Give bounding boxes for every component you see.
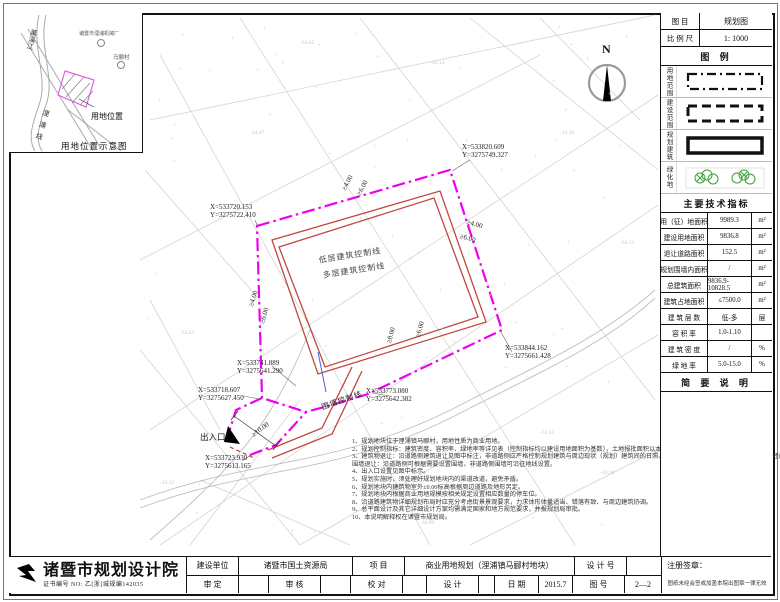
coordinate-label: X=533718.607Y=3275627.450 [198, 386, 244, 402]
indicator-unit: m² [752, 261, 772, 276]
legend-item-label: 绿化地 [661, 162, 677, 193]
survey-mark: + [257, 237, 260, 243]
location-inset: 诸暨市浬浦机械厂 马郦村 萬溪江 浬浦线 用地位置 用地位置示意图 [9, 13, 143, 153]
indicator-unit: m² [752, 213, 772, 228]
coordinate-leaders [242, 160, 512, 461]
survey-mark: + [558, 25, 561, 31]
survey-mark: + [564, 108, 567, 114]
poi-village-label: 马郦村 [113, 53, 130, 61]
survey-mark: + [618, 144, 621, 150]
survey-mark: + [406, 139, 409, 145]
survey-mark: + [419, 532, 422, 538]
survey-mark: + [409, 257, 412, 263]
building-control-lines [230, 191, 486, 458]
indicator-value: 5.0-15.0 [708, 357, 752, 372]
seal-label: 注册签章： [667, 560, 707, 571]
indicator-label: 绿 地 率 [661, 357, 708, 372]
survey-mark: + [291, 529, 294, 535]
survey-mark: + [154, 272, 157, 278]
client-value: 诸暨市国土资源局 [239, 557, 353, 575]
indicator-unit: 层 [752, 309, 772, 324]
survey-mark: + [173, 159, 176, 165]
checked-label: 校 对 [351, 576, 403, 594]
indicator-row: 容 积 率1.0-1.10 [661, 325, 772, 341]
survey-mark: + [373, 165, 376, 171]
poi-circle [98, 40, 105, 47]
survey-mark: + [158, 99, 161, 105]
indicator-value: 1.0-1.10 [708, 325, 752, 340]
indicator-label: 退让道路面积 [661, 245, 708, 260]
coordinate-label: X=533720.153Y=3275722.410 [210, 203, 256, 219]
survey-mark: + [146, 317, 149, 323]
survey-mark: + [181, 33, 184, 39]
sidebar: 图 目 规划图 比 例 尺 1: 1000 图 例 用地范围 建设范围 规划建筑 [660, 13, 772, 556]
north-arrow-icon [589, 65, 625, 101]
sheet-no-label: 图 号 [573, 576, 625, 594]
survey-mark: + [391, 235, 394, 241]
survey-mark: + [421, 415, 424, 421]
survey-mark: + [567, 240, 570, 246]
site-location-label: 用地位置 [91, 111, 123, 122]
trees-symbol [677, 166, 772, 190]
elevation-mark: -34.35 [540, 430, 554, 436]
brief-notes-title: 简 要 说 明 [661, 373, 772, 392]
survey-mark: + [324, 344, 327, 350]
survey-mark: + [453, 340, 456, 346]
survey-mark: + [376, 55, 379, 61]
survey-mark: + [318, 43, 321, 49]
note-line: 5、规划实施时，须处理好规划地块内的渠道改道，避免矛盾。 [352, 476, 654, 484]
checked-value [403, 576, 427, 594]
indicator-unit: m² [752, 277, 772, 292]
survey-mark: + [256, 68, 259, 74]
survey-mark: + [534, 155, 537, 161]
survey-mark: + [489, 293, 492, 299]
survey-mark: + [275, 53, 278, 59]
survey-mark: + [208, 69, 211, 75]
survey-mark: + [309, 336, 312, 342]
inset-title: 用地位置示意图 [61, 140, 128, 152]
survey-mark: + [198, 483, 201, 489]
indicator-label: 建筑占地面积 [661, 293, 708, 308]
survey-mark: + [400, 416, 403, 422]
elevation-mark: -34.05 [300, 40, 314, 46]
legend-item-label: 建设范围 [661, 98, 677, 129]
survey-mark: + [504, 366, 507, 372]
legend-item-greenery: 绿化地 [661, 162, 772, 194]
survey-mark: + [425, 356, 428, 362]
survey-mark: + [600, 523, 603, 529]
survey-mark: + [373, 144, 376, 150]
solid-rect-symbol [677, 135, 772, 157]
indicator-value: 9989.3 [708, 213, 752, 228]
indicator-value: / [708, 341, 752, 356]
survey-mark: + [586, 57, 589, 63]
poi-circle [118, 62, 125, 69]
legend-item-land-use: 用地范围 [661, 66, 772, 98]
elevation-mark: -34.14 [430, 60, 444, 66]
survey-mark: + [328, 152, 331, 158]
survey-mark: + [602, 196, 605, 202]
indicator-value: 9836.8 [708, 229, 752, 244]
elevation-mark: -34.28 [560, 130, 574, 136]
survey-mark: + [555, 138, 558, 144]
design-no-label: 设 计 号 [575, 557, 627, 575]
legend-item-label: 用地范围 [661, 66, 677, 97]
survey-mark: + [515, 321, 518, 327]
client-label: 建设单位 [187, 557, 239, 575]
dashed-rect-symbol [677, 103, 772, 125]
survey-mark: + [311, 298, 314, 304]
indicator-unit: m² [752, 245, 772, 260]
survey-mark: + [552, 79, 555, 85]
reviewed-label: 审 核 [269, 576, 321, 594]
survey-mark: + [315, 86, 318, 92]
survey-mark: + [313, 530, 316, 536]
note-line: 7、规划地块内根据商业用地规模按相关规定设置相应数量的停车位。 [352, 491, 654, 499]
survey-mark: + [608, 92, 611, 98]
design-no-value [627, 557, 661, 575]
survey-mark: + [263, 26, 266, 32]
survey-mark: + [417, 251, 420, 257]
institute-logo-icon [9, 563, 43, 587]
project-label: 项 目 [353, 557, 405, 575]
survey-mark: + [315, 355, 318, 361]
elevation-mark: -34.31 [160, 480, 174, 486]
designed-label: 设 计 [427, 576, 479, 594]
reviewed-value [321, 576, 351, 594]
survey-mark: + [380, 422, 383, 428]
scale-value: 1: 1000 [700, 30, 772, 46]
indicator-unit: % [752, 357, 772, 372]
entrance-arrow-icon [224, 426, 240, 444]
sheet-type-row: 图 目 规划图 [661, 13, 772, 30]
survey-mark: + [572, 169, 575, 175]
map-notes: 1、规划地块位于浬浦镇马郦村，用地性质为商业用地。2、规划控制指标：建筑密度、容… [352, 438, 654, 522]
legend-item-construction: 建设范围 [661, 98, 772, 130]
poi-factory-label: 诸暨市浬浦机械厂 [79, 30, 119, 37]
indicator-unit: % [752, 341, 772, 356]
indicator-value: / [708, 261, 752, 276]
indicator-row: 建 筑 密 度/% [661, 341, 772, 357]
survey-mark: + [552, 333, 555, 339]
scale-row: 比 例 尺 1: 1000 [661, 30, 772, 47]
elevation-mark: -34.23 [180, 330, 194, 336]
note-line: 10、本说明解释权在诸暨市规划局。 [352, 514, 654, 522]
survey-mark: + [500, 168, 503, 174]
survey-mark: + [179, 67, 182, 73]
survey-mark: + [458, 66, 461, 72]
survey-mark: + [570, 43, 573, 49]
indicator-unit: m² [752, 229, 772, 244]
legend-title: 图 例 [661, 47, 772, 66]
survey-mark: + [281, 61, 284, 67]
survey-mark: + [565, 365, 568, 371]
coordinate-label: X=533723.930Y=3275613.165 [205, 454, 251, 470]
certificate-number: 证书编号 NO: 乙[浙]城规编142035 [43, 579, 179, 588]
planning-drawing-sheet: N X=533720.153Y=3275722.410 X=533820.609… [0, 0, 780, 602]
note-line: 4、出入口设置见图中标示。 [352, 468, 654, 476]
survey-mark: + [268, 113, 271, 119]
title-block-grid: 建设单位 诸暨市国土资源局 项 目 商业用地规划（浬浦镇马郦村地块） 设 计 号… [187, 557, 662, 593]
indicator-value: ≤7500.0 [708, 293, 752, 308]
indicator-value: 152.5 [708, 245, 752, 260]
indicator-label: 用（征）地面积 [661, 213, 708, 228]
indicator-row: 建筑占地面积≤7500.0m² [661, 293, 772, 309]
institute-name: 诸暨市规划设计院 [43, 562, 179, 579]
elevation-mark: -34.12 [620, 240, 634, 246]
indicator-row: 绿 地 率5.0-15.0% [661, 357, 772, 373]
survey-mark: + [282, 286, 285, 292]
date-value: 2015.7 [539, 576, 573, 594]
approved-value [239, 576, 269, 594]
dashdot-rect-symbol [677, 71, 772, 93]
survey-mark: + [607, 380, 610, 386]
sheet-type-label: 图 目 [661, 13, 700, 29]
coordinate-label: X=533741.889Y=3275641.290 [237, 359, 283, 375]
indicator-label: 总建筑面积 [661, 277, 708, 292]
indicator-label: 建 筑 层 数 [661, 309, 708, 324]
survey-mark: + [173, 123, 176, 129]
indicator-label: 规划围墙内面积 [661, 261, 708, 276]
indicator-unit [752, 325, 772, 340]
sheet-no-value: 2—2 [625, 576, 661, 594]
survey-mark: + [439, 288, 442, 294]
indicator-value: 低-多 [708, 309, 752, 324]
seal-block: 注册签章： 图纸未经会签或加盖本院出图章一律无效 [662, 557, 771, 593]
north-label: N [602, 42, 611, 57]
indicator-row: 退让道路面积152.5m² [661, 245, 772, 261]
coordinate-label: X=533773.080Y=3275642.382 [366, 387, 412, 403]
institute-block: 诸暨市规划设计院 证书编号 NO: 乙[浙]城规编142035 [9, 557, 187, 593]
survey-mark: + [503, 282, 506, 288]
designed-value [479, 576, 495, 594]
approved-label: 审 定 [187, 576, 239, 594]
survey-mark: + [355, 32, 358, 38]
coordinate-label: X=533820.609Y=3275749.327 [462, 143, 508, 159]
elevation-mark: -34.47 [250, 130, 264, 136]
date-label: 日 期 [495, 576, 539, 594]
survey-mark: + [561, 327, 564, 333]
survey-mark: + [195, 511, 198, 517]
survey-mark: + [525, 375, 528, 381]
indicator-row: 总建筑面积9836.9-10828.5m² [661, 277, 772, 293]
note-line: 3、建筑物退让：沿道路侧建筑退让见图中标注，非道路侧应严格控制规划建筑与周边现状… [352, 453, 654, 461]
survey-mark: + [527, 243, 530, 249]
indicator-unit: m² [752, 293, 772, 308]
note-line: 1、规划地块位于浬浦镇马郦村，用地性质为商业用地。 [352, 438, 654, 446]
legend-item-label: 规划建筑 [661, 130, 677, 161]
survey-mark: + [170, 137, 173, 143]
sheet-type-value: 规划图 [700, 13, 772, 29]
indicator-label: 容 积 率 [661, 325, 708, 340]
project-value: 商业用地规划（浬浦镇马郦村地块） [405, 557, 575, 575]
legend-item-planned-building: 规划建筑 [661, 130, 772, 162]
indicator-row: 用（征）地面积9989.3m² [661, 213, 772, 229]
indicator-value: 9836.9-10828.5 [708, 277, 752, 292]
indicator-row: 建 筑 层 数低-多层 [661, 309, 772, 325]
indicator-label: 建 筑 密 度 [661, 341, 708, 356]
scale-label: 比 例 尺 [661, 30, 700, 46]
survey-mark: + [266, 439, 269, 445]
entrance-label: 出入口 [200, 431, 226, 443]
coordinate-label: X=533844.162Y=3275661.428 [505, 344, 551, 360]
survey-mark: + [625, 35, 628, 41]
indicators-table: 用（征）地面积9989.3m²建设用地面积9836.8m²退让道路面积152.5… [661, 213, 772, 373]
indicator-label: 建设用地面积 [661, 229, 708, 244]
survey-mark: + [359, 216, 362, 222]
indicator-row: 建设用地面积9836.8m² [661, 229, 772, 245]
survey-mark: + [440, 327, 443, 333]
title-block: 诸暨市规划设计院 证书编号 NO: 乙[浙]城规编142035 建设单位 诸暨市… [9, 556, 771, 593]
seal-note: 图纸未经会签或加盖本院出图章一律无效 [664, 579, 770, 587]
survey-mark: + [231, 36, 234, 42]
indicator-row: 规划围墙内面积/m² [661, 261, 772, 277]
note-line: 9、总平面设计及其它详细设计方案均需满足国家和地方规范要求，并报规划局审批。 [352, 506, 654, 514]
indicators-title: 主要技术指标 [661, 194, 772, 213]
survey-mark: + [408, 98, 411, 104]
